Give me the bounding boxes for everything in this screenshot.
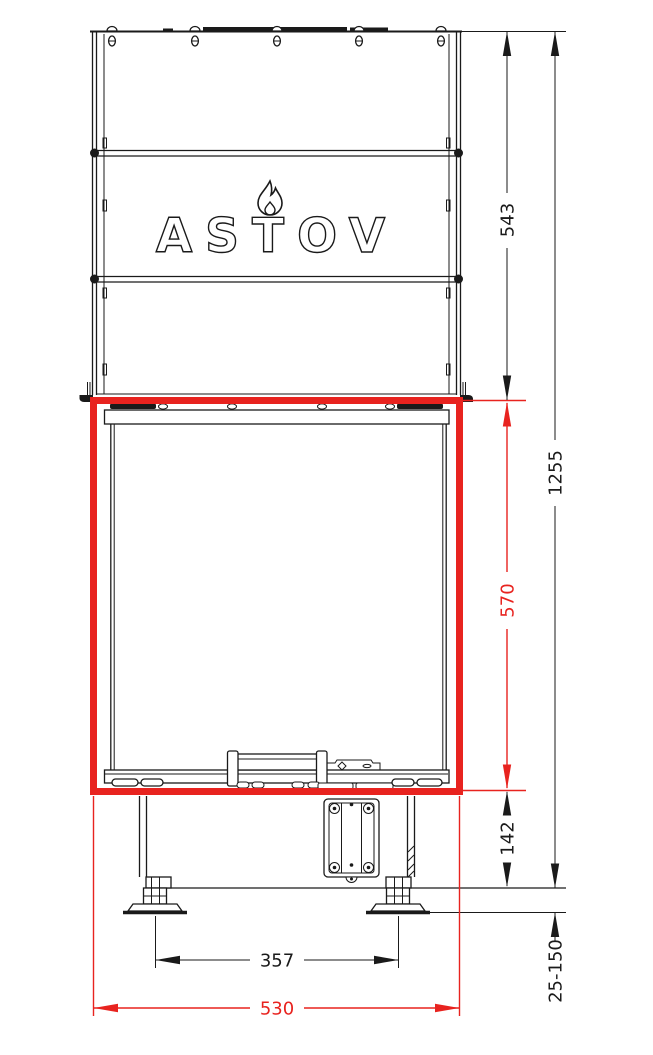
- frame-screw-slots: [159, 404, 395, 409]
- dimension-feet-spacing: 357: [156, 916, 399, 972]
- dimension-arrow-up: [503, 32, 511, 57]
- hood-panel: ASTOV: [90, 27, 463, 396]
- panel-divider-upper: [90, 149, 463, 158]
- latch-diamond-screw: [338, 762, 346, 770]
- leveling-foot-left: [123, 877, 187, 913]
- firebox-highlight-box: [94, 401, 460, 792]
- dimension-base-section-height: 142: [498, 791, 519, 887]
- firebox: [105, 403, 450, 790]
- handle-post-right: [317, 751, 328, 786]
- door-top-frame-bar: [105, 410, 450, 424]
- dimension-firebox-width: 530: [94, 999, 460, 1020]
- dimension-arrow-up: [551, 32, 559, 57]
- dimension-arrow-right: [435, 1004, 460, 1012]
- dimension-arrow-down: [503, 863, 511, 888]
- brand-logo: ASTOV: [156, 181, 398, 264]
- dimension-arrow-up: [503, 402, 511, 427]
- dimension-label-142: 142: [498, 821, 519, 855]
- left-leg: [140, 796, 147, 877]
- glass-panel-left-edge: [111, 424, 114, 770]
- technical-drawing-canvas: ASTOV: [0, 0, 653, 1055]
- flame-icon: [258, 181, 282, 215]
- mounting-bracket: [324, 799, 379, 883]
- brand-logo-text: ASTOV: [156, 209, 398, 264]
- dimension-label-357: 357: [260, 951, 294, 972]
- dimension-arrow-down: [503, 765, 511, 790]
- dimension-firebox-height: 570: [498, 402, 519, 789]
- dimension-foot-adjustment-range: 25-150: [546, 913, 567, 1003]
- dimension-label-543: 543: [498, 203, 519, 237]
- dimension-label-25-150: 25-150: [546, 939, 567, 1003]
- dimension-label-530: 530: [260, 999, 294, 1020]
- dimension-arrow-right: [374, 956, 399, 964]
- glass-panel-right-edge: [443, 424, 446, 770]
- divider-knob-left: [90, 149, 99, 158]
- dimension-overall-height: 1255: [546, 32, 567, 889]
- hinge-pad-right: [397, 404, 443, 410]
- leveling-foot-right: [366, 877, 430, 913]
- dimension-label-1255: 1255: [546, 450, 567, 496]
- handle-post-left: [228, 751, 239, 786]
- dimension-arrow-down: [503, 376, 511, 401]
- dimension-arrow-up: [503, 791, 511, 816]
- hood-top-screw-heads: [107, 27, 446, 32]
- hinge-pad-left: [110, 404, 156, 410]
- latch-bracket: [327, 760, 380, 770]
- dimension-top-section-height: 543: [498, 32, 519, 401]
- right-leg: [408, 796, 415, 877]
- dimension-arrow-left: [156, 956, 181, 964]
- handle-bar: [234, 754, 319, 770]
- divider-knob-right: [454, 149, 463, 158]
- dimension-label-570: 570: [498, 583, 519, 617]
- panel-divider-lower: [90, 275, 463, 284]
- dimension-arrow-down: [551, 864, 559, 889]
- hood-screw-slots: [109, 36, 445, 46]
- latch-slot: [363, 764, 371, 767]
- right-leg-hatch: [408, 846, 414, 877]
- divider-knob-left: [90, 275, 99, 284]
- dimension-arrow-left: [94, 1004, 119, 1012]
- divider-knob-right: [454, 275, 463, 284]
